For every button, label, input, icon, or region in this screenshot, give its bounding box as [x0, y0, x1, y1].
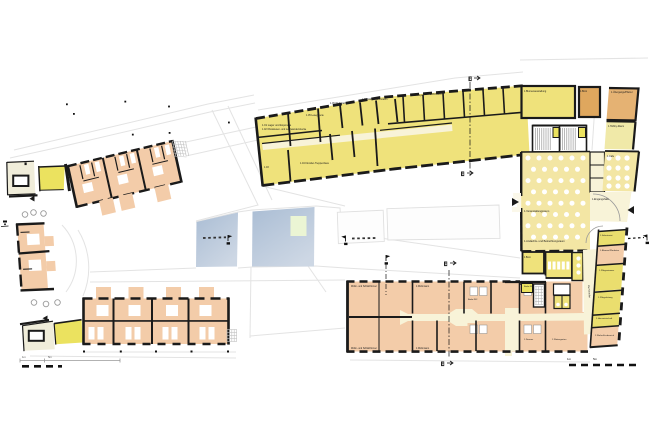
svg-text:1.Pflegeleitung: 1.Pflegeleitung: [598, 296, 613, 299]
svg-text:Bade-WC: Bade-WC: [468, 299, 478, 301]
svg-text:Wohn- und Schlafzimmer: Wohn- und Schlafzimmer: [351, 285, 377, 288]
svg-text:1.Blumen/Pfarrbüro: 1.Blumen/Pfarrbüro: [600, 249, 620, 252]
svg-text:1.03: 1.03: [264, 166, 269, 169]
svg-text:1.Cafe: 1.Cafe: [607, 155, 615, 158]
svg-text:1.05 Lesegalerie: 1.05 Lesegalerie: [306, 114, 324, 117]
svg-text:1.Eingangshalle: 1.Eingangshalle: [592, 198, 610, 201]
svg-text:1.07 Multifunktionsraum: 1.07 Multifunktionsraum: [362, 98, 387, 101]
svg-text:1.06 Werkstatt: 1.06 Werkstatt: [330, 102, 346, 105]
svg-text:1.Übergangs/Pfarrer: 1.Übergangs/Pfarrer: [611, 91, 633, 94]
svg-text:Wohn- und Schlafzimmer: Wohn- und Schlafzimmer: [351, 347, 377, 350]
svg-text:5m: 5m: [593, 357, 598, 361]
svg-text:1.Andachts- und Betrachtungsra: 1.Andachts- und Betrachtungsraum: [524, 239, 565, 243]
svg-text:1.Hobby-Raum: 1.Hobby-Raum: [608, 125, 624, 128]
svg-text:5m: 5m: [48, 355, 53, 359]
svg-text:1m: 1m: [22, 355, 27, 359]
svg-text:1m: 1m: [567, 357, 572, 361]
svg-text:Bade-WC: Bade-WC: [524, 286, 534, 288]
svg-text:1.Büro: 1.Büro: [524, 256, 531, 259]
svg-text:1.Zimmer: 1.Zimmer: [524, 338, 534, 341]
svg-text:1.Sekretariat: 1.Sekretariat: [600, 234, 613, 237]
svg-text:1.09 Bistro: 1.09 Bistro: [430, 93, 442, 96]
svg-text:1.Pflegezimmer: 1.Pflegezimmer: [599, 269, 614, 272]
svg-text:1.Wohnraum: 1.Wohnraum: [416, 285, 429, 288]
svg-text:1.Wintergarten: 1.Wintergarten: [552, 338, 567, 341]
svg-text:1.Wohnraum: 1.Wohnraum: [416, 347, 429, 350]
svg-text:1.02 Obstwiesen- und Lehrwande: 1.02 Obstwiesen- und Lehrwanderstrecke: [262, 128, 307, 131]
svg-text:1.Veranstaltungsraum: 1.Veranstaltungsraum: [524, 209, 549, 213]
svg-text:1.08 Foyer: 1.08 Foyer: [412, 94, 424, 97]
svg-text:1.04 Künstler-Treppenhaus: 1.04 Künstler-Treppenhaus: [300, 162, 330, 165]
svg-text:1.01 Lager und Exponate: 1.01 Lager und Exponate: [262, 123, 292, 127]
svg-text:1.Blumenausstellung: 1.Blumenausstellung: [524, 90, 547, 93]
svg-text:1.Wohn-Essbereich: 1.Wohn-Essbereich: [595, 334, 615, 337]
svg-text:1.Hauswirtschaft: 1.Hauswirtschaft: [596, 317, 613, 320]
svg-text:1.Büro: 1.Büro: [580, 90, 588, 93]
